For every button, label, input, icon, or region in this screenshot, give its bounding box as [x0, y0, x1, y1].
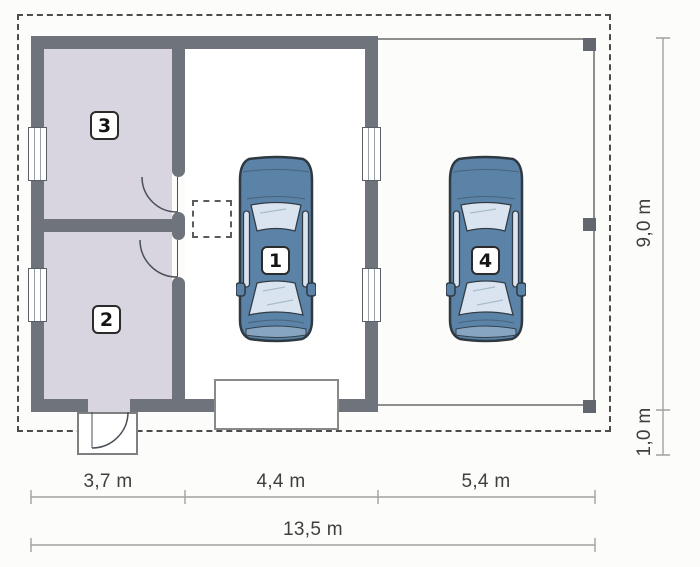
- car-1-number: 1: [269, 250, 282, 272]
- dim-label-5-4-m: 5,4 m: [411, 471, 561, 493]
- wall-top: [31, 36, 378, 49]
- wall-interior-horizontal: [40, 219, 172, 232]
- window-room2: [28, 268, 47, 322]
- garage-door: [214, 379, 339, 430]
- carport-pillar-middle: [583, 218, 596, 231]
- room-3-number: 3: [98, 115, 111, 137]
- wall-garage-right: [365, 36, 378, 412]
- room-3-label: 3: [90, 111, 119, 140]
- wall-interior-vertical-bottom: [172, 277, 185, 399]
- carport-pillar-top: [583, 38, 596, 51]
- carport-edge-top: [378, 38, 596, 40]
- dim-ticks-right: [656, 38, 670, 455]
- car-4-label: 4: [471, 246, 500, 275]
- dim-label-3-7-m: 3,7 m: [33, 471, 183, 493]
- wall-bottom-left: [31, 399, 89, 412]
- car-4-number: 4: [479, 250, 492, 272]
- entrance-porch: [77, 412, 138, 455]
- carport-pillar-bottom: [583, 400, 596, 413]
- wall-bottom-right: [339, 399, 378, 412]
- room-2-label: 2: [92, 305, 121, 334]
- carport-edge-bottom: [378, 404, 596, 406]
- dim-label-9-0-m: 9,0 m: [634, 168, 656, 278]
- window-garage-top: [362, 127, 381, 181]
- room-2-number: 2: [100, 309, 113, 331]
- dim-label-1-0-m: 1,0 m: [634, 377, 656, 487]
- dim-label-13-5-m: 13,5 m: [238, 519, 388, 541]
- wall-interior-vertical-top: [172, 49, 185, 177]
- dashed-shaft-outline: [192, 200, 232, 238]
- wall-bottom-middle: [130, 399, 216, 412]
- car-carport: 4: [446, 153, 526, 345]
- dim-label-4-4-m: 4,4 m: [206, 471, 356, 493]
- window-room3: [28, 127, 47, 181]
- car-garage: 1: [236, 153, 316, 345]
- car-1-label: 1: [261, 246, 290, 275]
- wall-interior-vertical-middle: [172, 212, 185, 240]
- window-garage-bottom: [362, 268, 381, 322]
- entrance-threshold: [88, 399, 130, 412]
